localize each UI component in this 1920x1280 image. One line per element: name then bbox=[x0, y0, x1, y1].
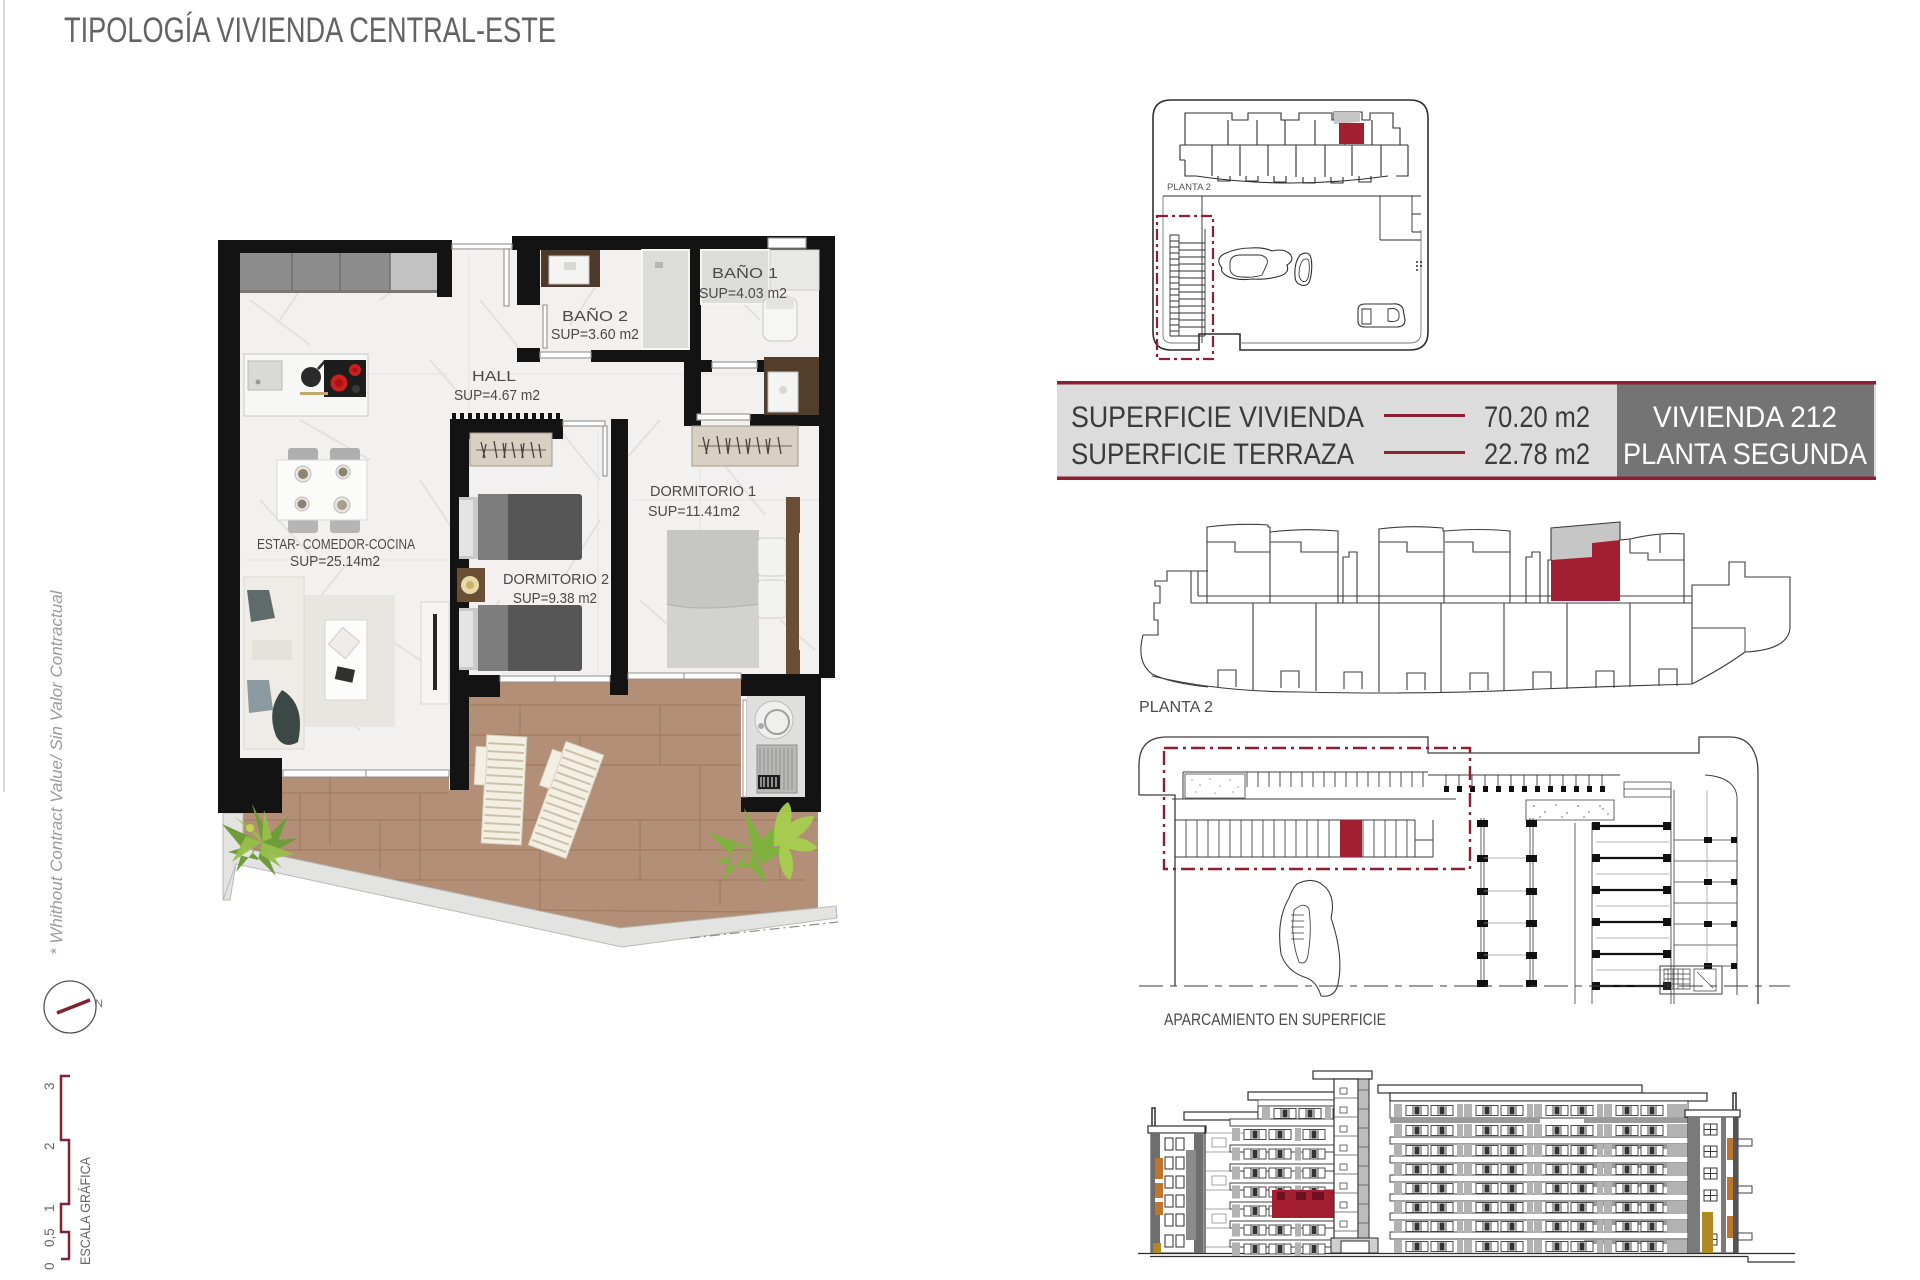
svg-text:SUP=25.14m2: SUP=25.14m2 bbox=[290, 553, 380, 570]
svg-text:VIVIENDA 212: VIVIENDA 212 bbox=[1653, 401, 1837, 434]
svg-text:2: 2 bbox=[42, 1142, 57, 1150]
svg-text:0,5: 0,5 bbox=[42, 1228, 57, 1247]
svg-text:PLANTA SEGUNDA: PLANTA SEGUNDA bbox=[1623, 438, 1867, 471]
svg-text:1: 1 bbox=[42, 1204, 57, 1212]
svg-text:SUP=11.41m2: SUP=11.41m2 bbox=[648, 503, 740, 520]
svg-text:SUP=9.38 m2: SUP=9.38 m2 bbox=[513, 590, 597, 607]
svg-text:PLANTA 2: PLANTA 2 bbox=[1167, 182, 1211, 193]
svg-text:0: 0 bbox=[42, 1262, 57, 1270]
svg-text:BAÑO 1: BAÑO 1 bbox=[712, 265, 778, 282]
svg-text:DORMITORIO 1: DORMITORIO 1 bbox=[650, 483, 756, 500]
svg-text:ESTAR- COMEDOR-COCINA: ESTAR- COMEDOR-COCINA bbox=[257, 536, 415, 553]
svg-text:3: 3 bbox=[42, 1082, 57, 1090]
svg-text:TIPOLOGÍA VIVIENDA CENTRAL-EST: TIPOLOGÍA VIVIENDA CENTRAL-ESTE bbox=[64, 11, 556, 50]
svg-text:BAÑO 2: BAÑO 2 bbox=[562, 308, 628, 325]
svg-text:ESCALA GRÁFICA: ESCALA GRÁFICA bbox=[77, 1156, 93, 1265]
svg-text:SUP=4.67 m2: SUP=4.67 m2 bbox=[454, 387, 540, 404]
svg-text:APARCAMIENTO EN SUPERFICIE: APARCAMIENTO EN SUPERFICIE bbox=[1164, 1011, 1386, 1029]
svg-text:DORMITORIO 2: DORMITORIO 2 bbox=[503, 571, 609, 588]
svg-text:SUP=4.03 m2: SUP=4.03 m2 bbox=[699, 285, 787, 302]
svg-text:22.78 m2: 22.78 m2 bbox=[1484, 438, 1590, 471]
svg-text:PLANTA 2: PLANTA 2 bbox=[1139, 699, 1213, 716]
svg-text:SUPERFICIE TERRAZA: SUPERFICIE TERRAZA bbox=[1071, 438, 1354, 471]
svg-text:SUP=3.60 m2: SUP=3.60 m2 bbox=[551, 326, 639, 343]
svg-text:* Whithout Contract Value/ Sin: * Whithout Contract Value/ Sin Valor Con… bbox=[47, 589, 66, 955]
svg-text:SUPERFICIE VIVIENDA: SUPERFICIE VIVIENDA bbox=[1071, 401, 1364, 434]
svg-text:HALL: HALL bbox=[472, 368, 516, 385]
svg-text:N: N bbox=[95, 998, 103, 1010]
svg-text:70.20 m2: 70.20 m2 bbox=[1484, 401, 1590, 434]
